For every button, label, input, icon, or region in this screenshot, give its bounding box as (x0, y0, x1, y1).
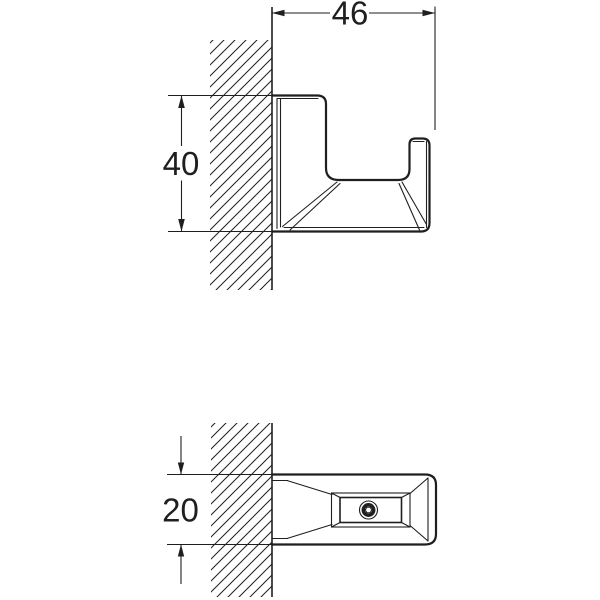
chamfer-left-lower (290, 184, 340, 231)
wall-section-plan (211, 423, 272, 597)
wall-section-side (210, 40, 272, 290)
taper-bottom-left (287, 525, 332, 539)
hook-plan-outline (272, 475, 436, 545)
recess-corner-tl (332, 493, 341, 498)
dim-value-depth: 20 (162, 492, 199, 529)
screw-icon (360, 501, 378, 519)
arrowhead-left (272, 10, 285, 17)
taper-bottom-right (410, 526, 428, 542)
plan-view: 20 (162, 423, 436, 597)
arrowhead-right (423, 10, 436, 17)
arrowhead-up (178, 545, 184, 557)
dimension-drawing-svg: 46 40 (0, 0, 600, 600)
dimension-width: 46 (272, 0, 435, 130)
recess-corner-bl (332, 523, 341, 528)
taper-top-left (287, 481, 332, 495)
recess-corner-tr (402, 493, 411, 498)
arrowhead-down (178, 463, 184, 475)
taper-top-right (410, 478, 428, 494)
product-dimension-diagram: 46 40 (0, 0, 600, 600)
recess-corner-br (402, 523, 411, 528)
arrowhead-up (178, 96, 185, 109)
arrowhead-down (178, 219, 185, 232)
dim-value-height: 40 (163, 145, 200, 182)
dim-value-width: 46 (332, 0, 369, 32)
hex-socket (365, 507, 371, 513)
hook-side-outline (272, 96, 430, 232)
side-view: 46 40 (163, 0, 435, 290)
chamfer-left-upper (283, 182, 338, 227)
